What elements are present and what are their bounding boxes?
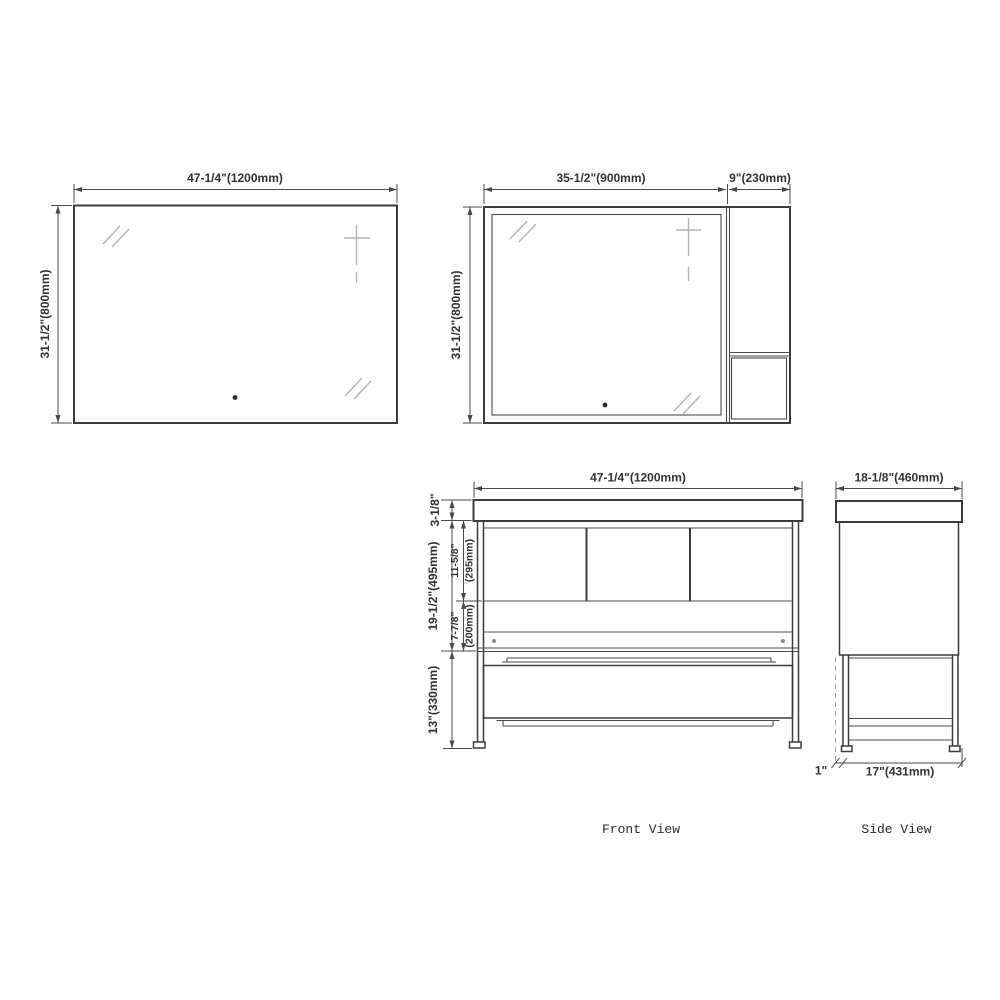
countertop-outline (474, 500, 803, 521)
side-cabinet-width-label: 9"(230mm) (729, 171, 791, 185)
mirror-cabinet-height-dimension (463, 207, 482, 423)
lower-band (478, 632, 799, 652)
mirror-width-dimension (484, 184, 790, 204)
counter-height-label: 3-1/8" (428, 493, 442, 526)
screw-dot-icon (781, 639, 785, 643)
defogger-cross-icon (344, 225, 370, 283)
mirror-cabinet-view: 35-1/2"(900mm) 9"(230mm) 31-1/2"(800mm) (449, 171, 791, 423)
base-drawer-panel (484, 666, 793, 719)
glass-reflection-icon (510, 221, 536, 242)
single-mirror-width-label: 47-1/4"(1200mm) (187, 171, 283, 185)
touch-button-dot-icon (603, 403, 608, 408)
defogger-cross-icon (676, 218, 701, 281)
side-depth-label: 18-1/8"(460mm) (854, 471, 943, 485)
touch-button-dot-icon (233, 395, 238, 400)
glass-reflection-icon (345, 378, 371, 399)
single-mirror-height-dimension (51, 206, 72, 424)
mirror-cabinet-outline (484, 207, 790, 423)
technical-drawing-page: 47-1/4"(1200mm) 31-1/2"(800mm) (0, 0, 1000, 1000)
doors-height-mm-label: (295mm) (464, 539, 476, 582)
side-view-drawing: 18-1/8"(460mm) 1" 17"(431mm) Side View (815, 471, 966, 838)
mirror-inner-frame (492, 215, 721, 416)
cabinet-side-outline (840, 522, 959, 655)
single-mirror-height-label: 31-1/2"(800mm) (38, 269, 52, 358)
side-frame-rails (849, 658, 953, 740)
drawer-height-mm-label: (200mm) (464, 604, 476, 647)
foot-block (842, 746, 853, 752)
side-base-depth-label: 17"(431mm) (866, 765, 934, 779)
foot-block (790, 742, 802, 748)
drawer-height-label: 7-7/8" (449, 612, 461, 641)
cabinet-doors (484, 528, 793, 601)
side-view-caption: Side View (861, 822, 931, 837)
front-view-caption: Front View (602, 822, 680, 837)
front-view-drawing: 47-1/4"(1200mm) 3-1/8" 19-1/2"(495mm) 11… (426, 471, 803, 838)
top-rail (502, 658, 776, 662)
foot-block (474, 742, 486, 748)
side-legs (843, 655, 958, 746)
foot-block (950, 746, 961, 752)
front-width-label: 47-1/4"(1200mm) (590, 471, 686, 485)
screw-dot-icon (492, 639, 496, 643)
bottom-rail (497, 721, 780, 727)
base-height-label: 13"(330mm) (426, 666, 440, 734)
single-mirror-view: 47-1/4"(1200mm) 31-1/2"(800mm) (38, 171, 397, 423)
open-shelf-outline (732, 358, 787, 419)
countertop-side-outline (836, 501, 962, 522)
mirror-cabinet-height-label: 31-1/2"(800mm) (449, 270, 463, 359)
glass-reflection-icon (674, 393, 700, 414)
mirror-width-label: 35-1/2"(900mm) (556, 171, 645, 185)
cabinet-height-label: 19-1/2"(495mm) (426, 541, 440, 630)
vanity-dimension-drawing: 47-1/4"(1200mm) 31-1/2"(800mm) (0, 0, 1000, 1000)
glass-reflection-icon (103, 226, 129, 247)
single-mirror-width-dimension (74, 184, 397, 203)
doors-height-label: 11-5/8" (449, 543, 461, 577)
leg-offset-label: 1" (815, 764, 827, 778)
